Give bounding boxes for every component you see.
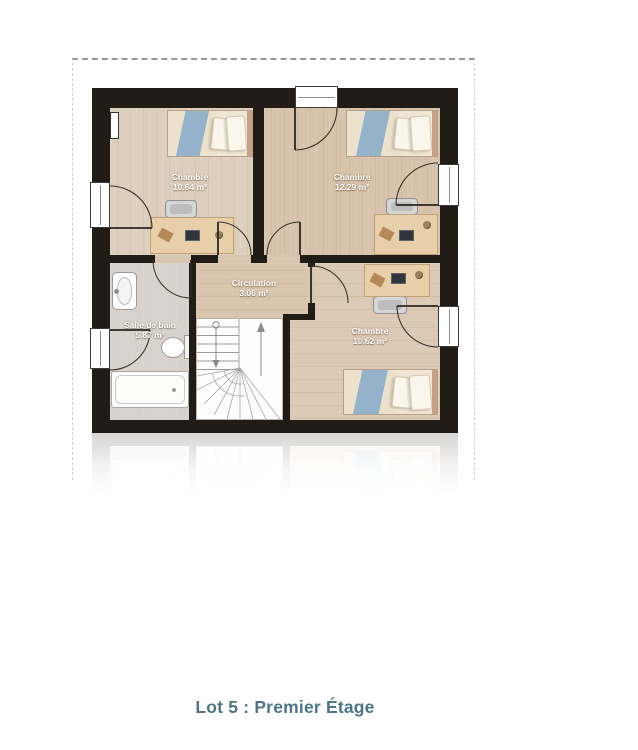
bathtub — [111, 371, 189, 408]
wall — [283, 314, 290, 420]
desk-chair — [373, 296, 407, 314]
page-title: Lot 5 : Premier Étage — [95, 697, 475, 718]
room-label-salle-de-bain: Salle de bain 5.87 m² — [100, 320, 200, 340]
bed — [167, 110, 253, 157]
wall — [300, 255, 440, 263]
room-area: 5.87 m² — [100, 330, 200, 340]
wall — [251, 255, 267, 263]
desk-chair — [386, 198, 418, 215]
toilet — [161, 337, 185, 358]
desk — [150, 217, 234, 254]
wall — [110, 255, 155, 263]
window — [438, 164, 459, 206]
room-area: 12.29 m² — [292, 182, 412, 192]
wall — [253, 108, 264, 255]
floor-plan-page: Chambre 10.64 m² Chambre 12.29 m² Salle … — [0, 0, 638, 750]
plan-reflection: Chambre 10.64 m² Chambre 12.29 m² Salle … — [92, 433, 458, 495]
room-name: Salle de bain — [100, 320, 200, 330]
room-area: 10.62 m² — [310, 336, 430, 346]
room-area: 3.06 m² — [194, 288, 314, 298]
wall — [92, 88, 110, 433]
wall — [92, 88, 458, 108]
window — [295, 86, 338, 108]
room-name: Chambre — [130, 172, 250, 182]
reflection-fade — [92, 433, 458, 495]
bed — [346, 110, 438, 157]
room-label-chambre-1: Chambre 10.64 m² — [130, 172, 250, 192]
room-label-chambre-2: Chambre 12.29 m² — [292, 172, 412, 192]
floor-plan: Chambre 10.64 m² Chambre 12.29 m² Salle … — [92, 88, 458, 433]
room-name: Circulation — [194, 278, 314, 288]
desk-chair — [165, 200, 197, 218]
room-label-circulation: Circulation 3.06 m² — [194, 278, 314, 298]
wall — [308, 263, 315, 267]
room-name: Chambre — [292, 172, 412, 182]
desk — [364, 264, 430, 297]
radiator — [110, 112, 119, 139]
room-label-chambre-3: Chambre 10.62 m² — [310, 326, 430, 346]
window — [90, 182, 110, 228]
wall — [92, 420, 458, 433]
wall — [191, 255, 218, 263]
wall — [440, 88, 458, 433]
window — [438, 306, 459, 347]
room-name: Chambre — [310, 326, 430, 336]
bed — [343, 369, 438, 415]
bathroom-sink — [112, 272, 137, 310]
room-area: 10.64 m² — [130, 182, 250, 192]
desk — [374, 214, 438, 255]
